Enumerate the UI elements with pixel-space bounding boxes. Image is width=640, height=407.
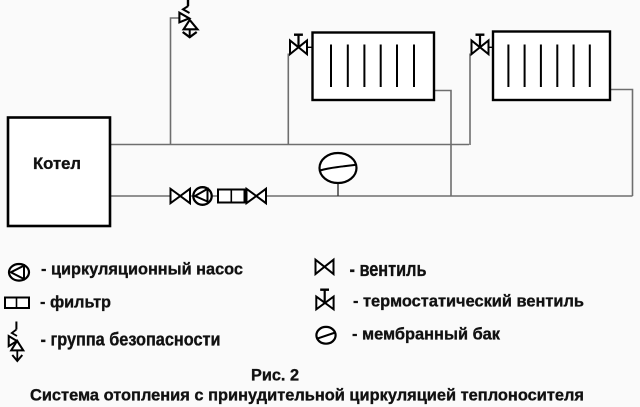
svg-text:- вентиль: - вентиль	[350, 259, 427, 281]
svg-text:Котел: Котел	[33, 154, 81, 173]
svg-text:- мембранный бак: - мембранный бак	[352, 325, 500, 344]
svg-text:- фильтр: - фильтр	[40, 293, 111, 312]
svg-text:- термостатический вентиль: - термостатический вентиль	[353, 292, 584, 311]
svg-text:- циркуляционный насос: - циркуляционный насос	[41, 260, 243, 279]
svg-text:Рис. 2: Рис. 2	[251, 367, 299, 385]
svg-text:Система отопления с принудител: Система отопления с принудительной цирку…	[30, 387, 584, 405]
svg-text:- группа безопасности: - группа безопасности	[41, 329, 221, 349]
